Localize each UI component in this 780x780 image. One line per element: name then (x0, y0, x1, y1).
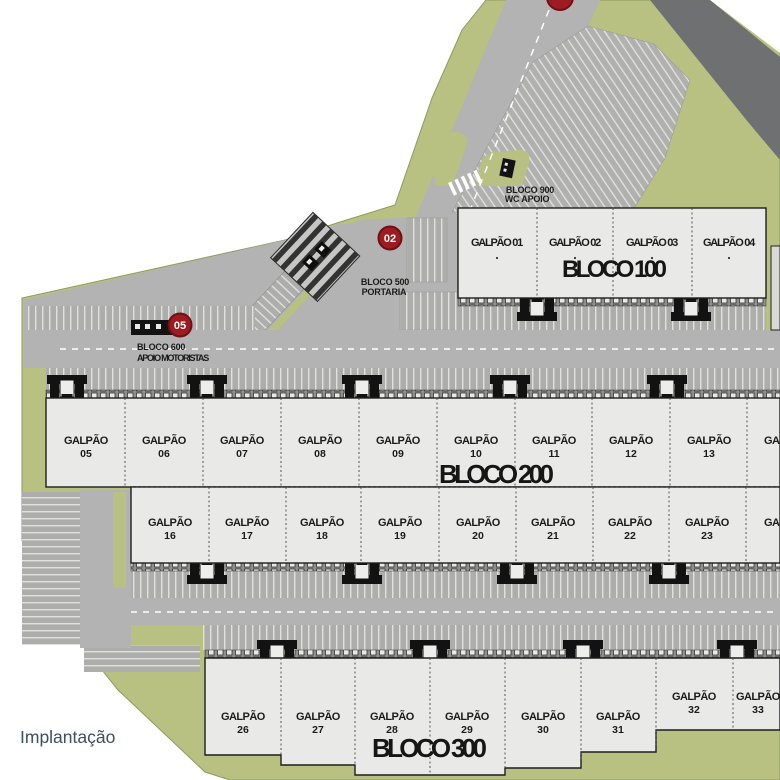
dock-strip-bloco100 (458, 298, 766, 306)
galpao-19-num: 19 (394, 530, 406, 542)
galpao-13-name: GALPÃO (687, 434, 732, 447)
galpao-30-num: 30 (537, 724, 549, 736)
galpao-14-name: GALPÃO (764, 434, 780, 447)
bloco-100-label: BLOCO 100 (562, 256, 667, 283)
galpao-09-name: GALPÃO (376, 434, 421, 447)
gate-parking-east (407, 218, 447, 282)
green-strip-west (113, 492, 126, 588)
galpao-11-name: GALPÃO (532, 434, 577, 447)
galpao-05-num: 05 (80, 448, 92, 460)
galpao-07-num: 07 (236, 448, 248, 460)
implantacao-caption: Implantação (20, 727, 115, 747)
galpao-18-num: 18 (316, 530, 328, 542)
galpao-29-name: GALPÃO (445, 710, 490, 723)
galpao-26-name: GALPÃO (221, 710, 266, 723)
badge-gate-number: 02 (384, 233, 396, 245)
galpao-32-num: 32 (688, 704, 700, 716)
galpao-27-num: 27 (312, 724, 324, 736)
galpao-20-num: 20 (472, 530, 484, 542)
galpao-21-num: 21 (547, 530, 559, 542)
galpao-01-label: GALPÃO 01 (471, 236, 523, 249)
galpao-04-label: GALPÃO 04 (703, 236, 756, 249)
galpao-26-num: 26 (237, 724, 249, 736)
bloco-300-label: BLOCO 300 (372, 733, 487, 763)
bloco100-apron (455, 306, 766, 330)
galpao-23-name: GALPÃO (685, 516, 730, 529)
badge-drivers-number: 05 (174, 320, 186, 332)
west-lot-lower (84, 645, 200, 672)
bloco-600-sublabel: APOIO MOTORISTAS (137, 353, 209, 363)
bloco-900-sublabel: WC APOIO (505, 194, 550, 204)
galpao-28-name: GALPÃO (370, 710, 415, 723)
bloco-600-building (131, 320, 173, 335)
bloco-200-label: BLOCO 200 (439, 459, 554, 489)
galpao-12-name: GALPÃO (609, 434, 654, 447)
galpao-16-name: GALPÃO (148, 516, 193, 529)
bloco-100-building (458, 208, 766, 298)
galpao-31-name: GALPÃO (596, 710, 641, 723)
galpao-09-num: 09 (392, 448, 404, 460)
galpao-10-name: GALPÃO (454, 434, 499, 447)
galpao-02-label: GALPÃO 02 (549, 236, 601, 249)
galpao-33-num: 33 (752, 704, 764, 716)
galpao-17-num: 17 (241, 530, 253, 542)
galpao-32-name: GALPÃO (672, 690, 717, 703)
galpao-12-num: 12 (625, 448, 637, 460)
galpao-19-name: GALPÃO (378, 516, 423, 529)
galpao-27-name: GALPÃO (296, 710, 341, 723)
badge-drivers: 05 (169, 314, 192, 337)
galpao-06-name: GALPÃO (142, 434, 187, 447)
galpao-23-num: 23 (701, 530, 713, 542)
galpao-17-name: GALPÃO (225, 516, 270, 529)
edge-structure-east (771, 246, 780, 330)
galpao-07-name: GALPÃO (220, 434, 265, 447)
galpao-16-num: 16 (164, 530, 176, 542)
site-plan: 02 05 GALPÃO 01 GALPÃO 02 GALPÃO 03 GALP… (0, 0, 780, 780)
site-plan-canvas: 02 05 GALPÃO 01 GALPÃO 02 GALPÃO 03 GALP… (0, 0, 780, 780)
galpao-33-name: GALPÃO (736, 690, 780, 703)
galpao-08-num: 08 (314, 448, 326, 460)
galpao-06-num: 06 (158, 448, 170, 460)
galpao-05-name: GALPÃO (64, 434, 109, 447)
galpao-03-label: GALPÃO 03 (626, 236, 678, 249)
bloco-200-building (46, 398, 780, 563)
badge-gate: 02 (379, 227, 402, 250)
galpao-30-name: GALPÃO (521, 710, 566, 723)
galpao-22-num: 22 (624, 530, 636, 542)
bloco-500-label: BLOCO 500 (361, 277, 409, 287)
bloco-600-label: BLOCO 600 (137, 342, 185, 352)
bloco-500-sublabel: PORTARIA (362, 287, 407, 297)
galpao-08-name: GALPÃO (298, 434, 343, 447)
galpao-21-name: GALPÃO (531, 516, 576, 529)
galpao-24-name: GALPÃO (764, 516, 780, 529)
galpao-20-name: GALPÃO (456, 516, 501, 529)
west-parking-column (22, 492, 80, 645)
galpao-22-name: GALPÃO (608, 516, 653, 529)
galpao-18-name: GALPÃO (300, 516, 345, 529)
galpao-31-num: 31 (612, 724, 624, 736)
galpao-13-num: 13 (703, 448, 715, 460)
